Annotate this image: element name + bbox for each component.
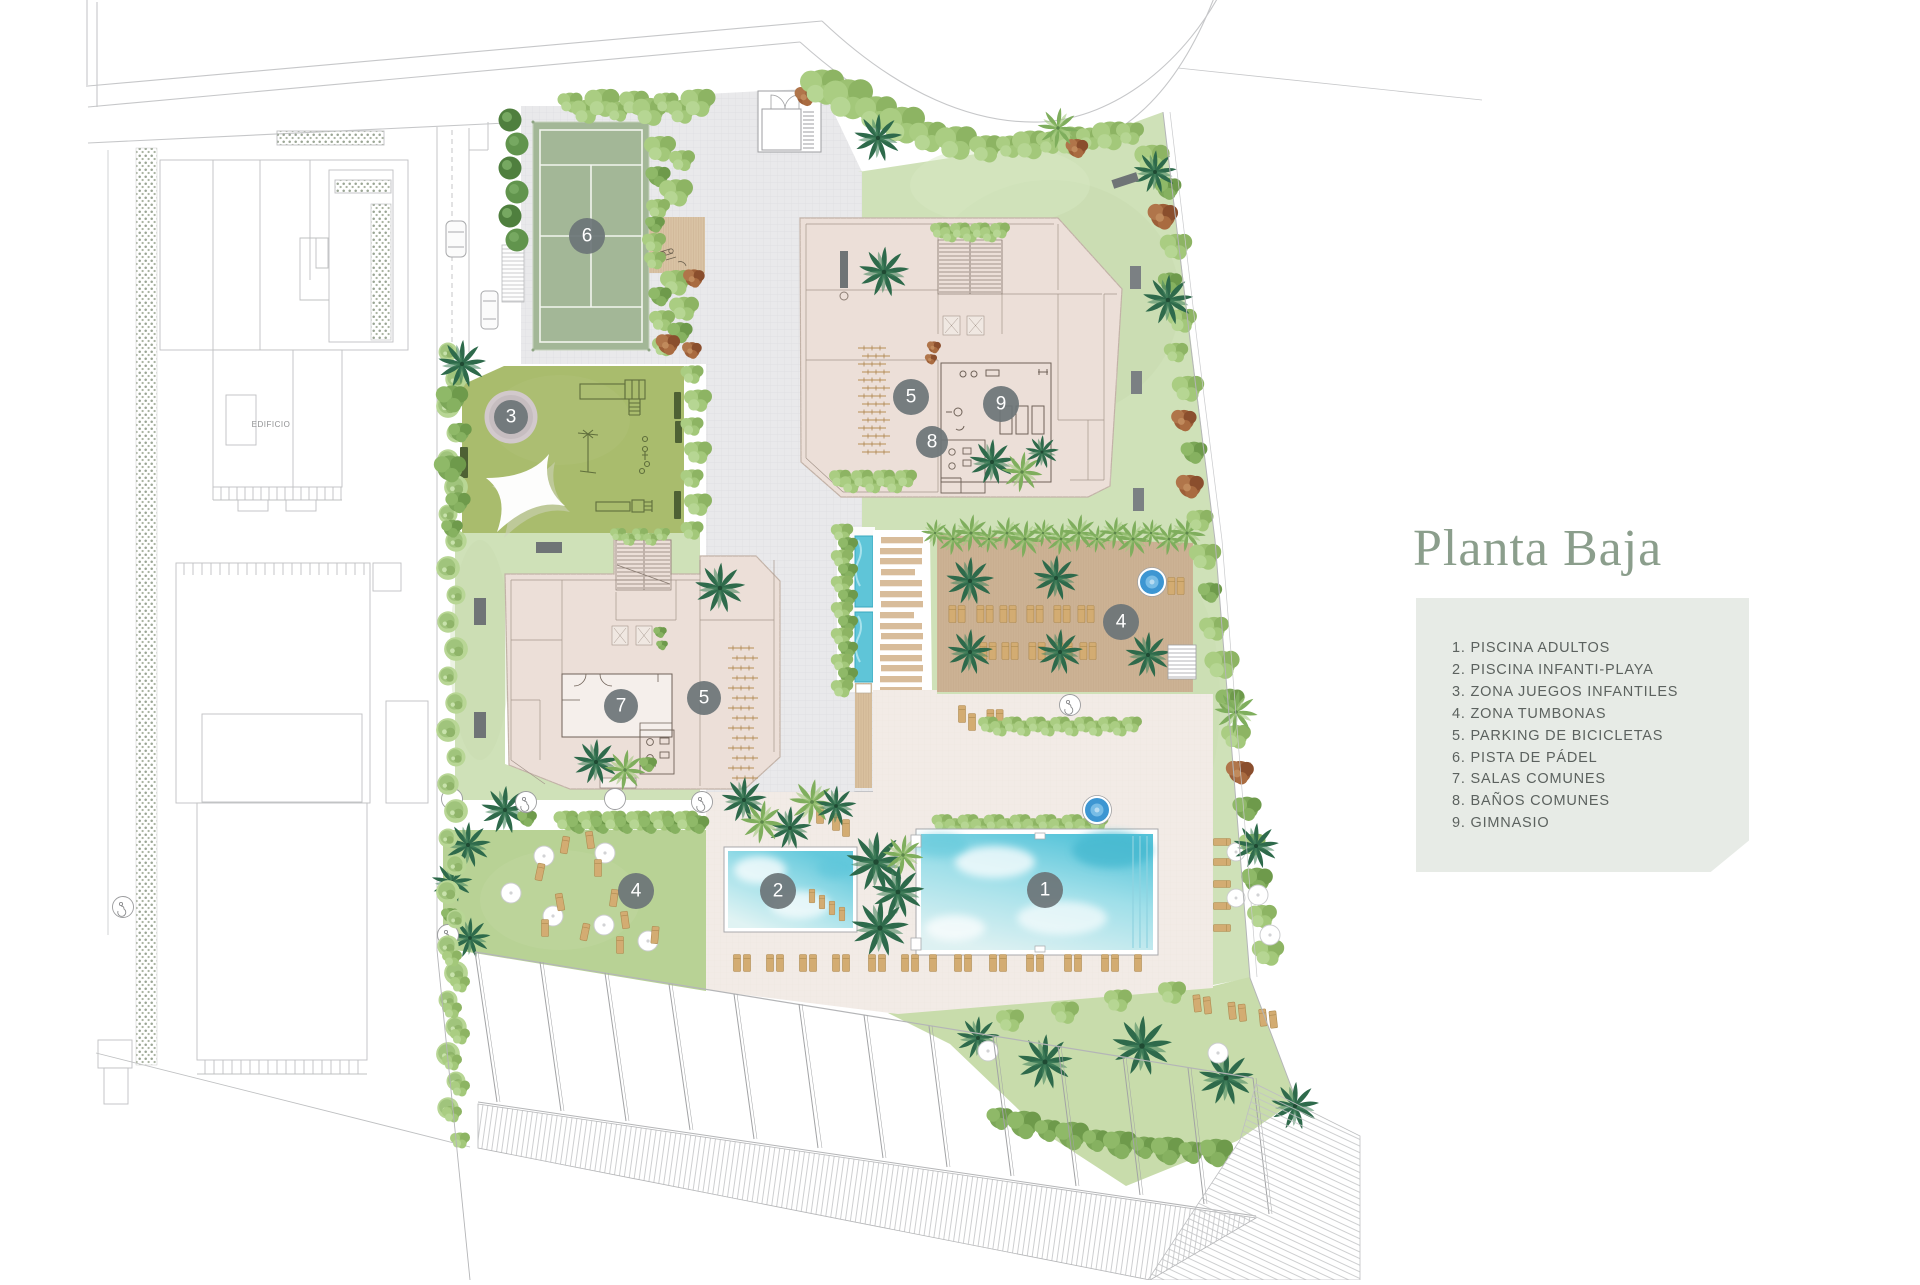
svg-text:EDIFICIO: EDIFICIO (252, 420, 291, 429)
svg-text:4: 4 (631, 881, 642, 902)
svg-text:4: 4 (1116, 612, 1127, 633)
svg-text:2: 2 (773, 881, 784, 902)
svg-text:9: 9 (996, 394, 1007, 415)
svg-text:6: 6 (582, 226, 593, 247)
svg-text:7: 7 (616, 696, 627, 717)
svg-text:5: 5 (699, 688, 710, 709)
svg-text:8: 8 (927, 432, 938, 453)
svg-text:5: 5 (906, 387, 917, 408)
svg-text:3: 3 (506, 407, 517, 428)
svg-text:1: 1 (1040, 880, 1051, 901)
